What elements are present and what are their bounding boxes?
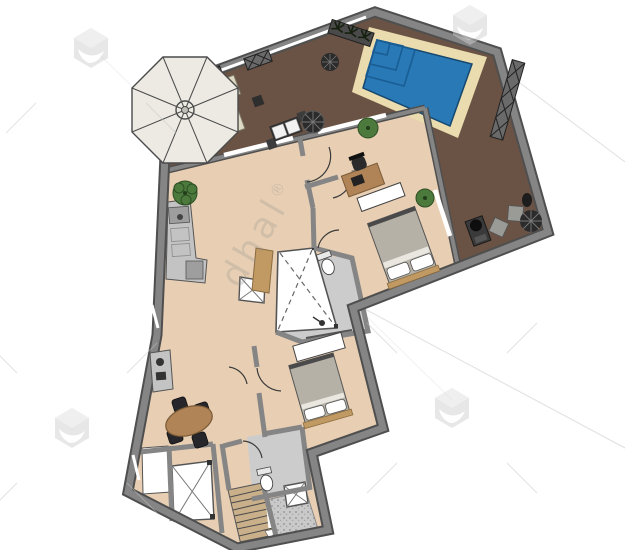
- parasol: [132, 57, 238, 163]
- sink: [177, 214, 183, 220]
- floor-plan-image: dhal®: [0, 0, 625, 550]
- planter-pot: [321, 53, 339, 71]
- round-table: [520, 210, 542, 232]
- cube-logo: [74, 28, 108, 68]
- cube-logo: [55, 408, 89, 448]
- kitchen-side-unit: [150, 350, 173, 392]
- cube-logo: [435, 388, 469, 428]
- floor-plan-canvas: dhal®: [0, 0, 625, 550]
- vase: [522, 193, 532, 207]
- round-table: [302, 111, 324, 133]
